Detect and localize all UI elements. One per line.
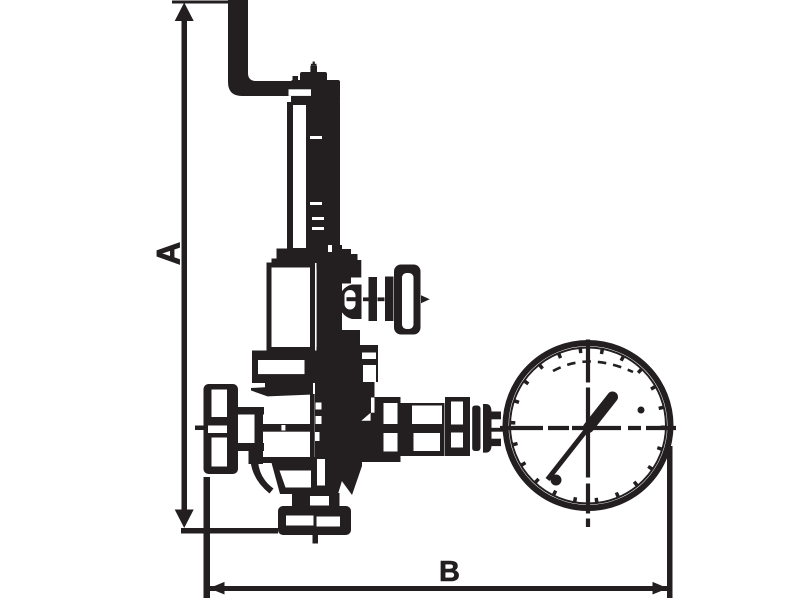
svg-text:A: A [151, 242, 187, 265]
svg-text:B: B [439, 556, 460, 588]
